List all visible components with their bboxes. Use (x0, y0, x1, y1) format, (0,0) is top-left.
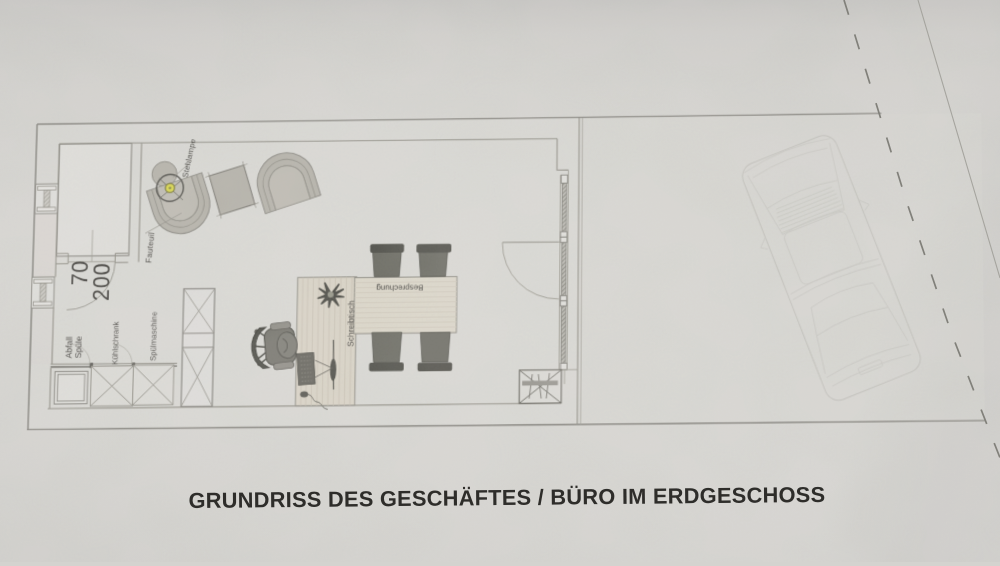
svg-text:GRUNDRISS DES GESCHÄFTES / BÜR: GRUNDRISS DES GESCHÄFTES / BÜRO IM ERDGE… (188, 482, 825, 513)
